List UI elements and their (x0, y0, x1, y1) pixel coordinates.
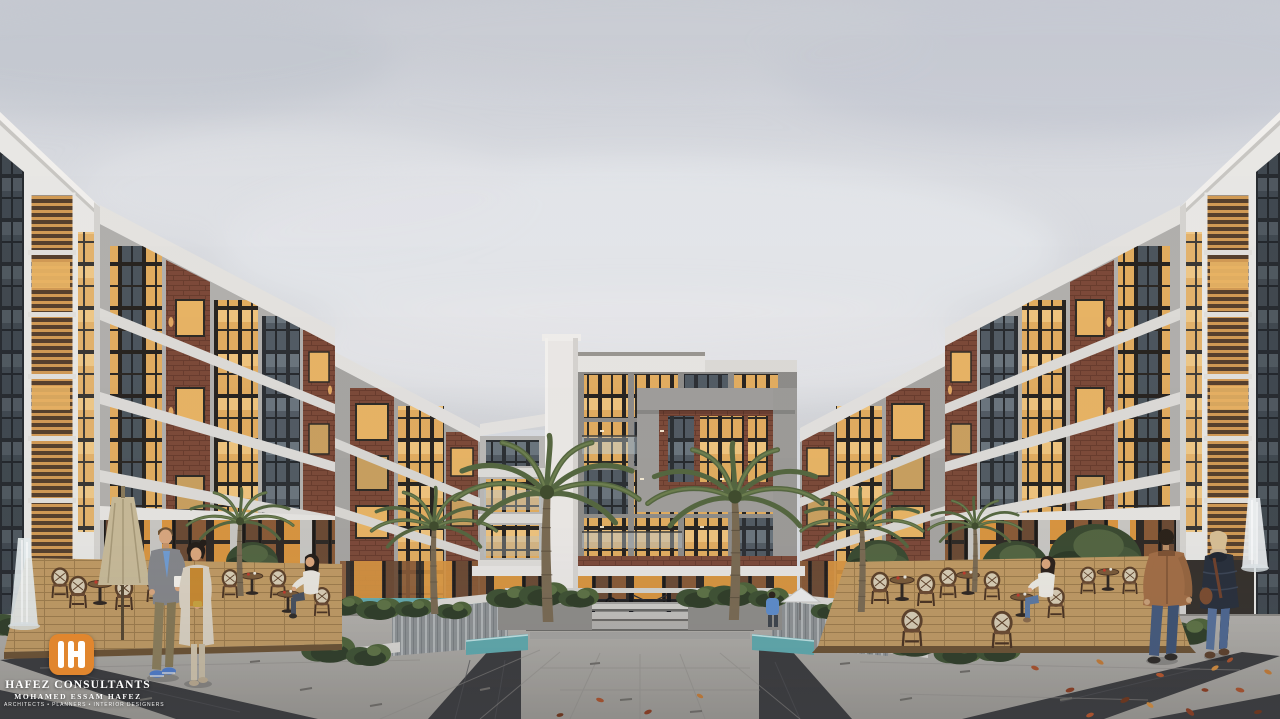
rendering-scene (0, 0, 1280, 719)
rendering-stage: HAFEZ CONSULTANTS MOHAMED ESSAM HAFEZ AR… (0, 0, 1280, 719)
dusk-color-grade (0, 0, 1280, 719)
